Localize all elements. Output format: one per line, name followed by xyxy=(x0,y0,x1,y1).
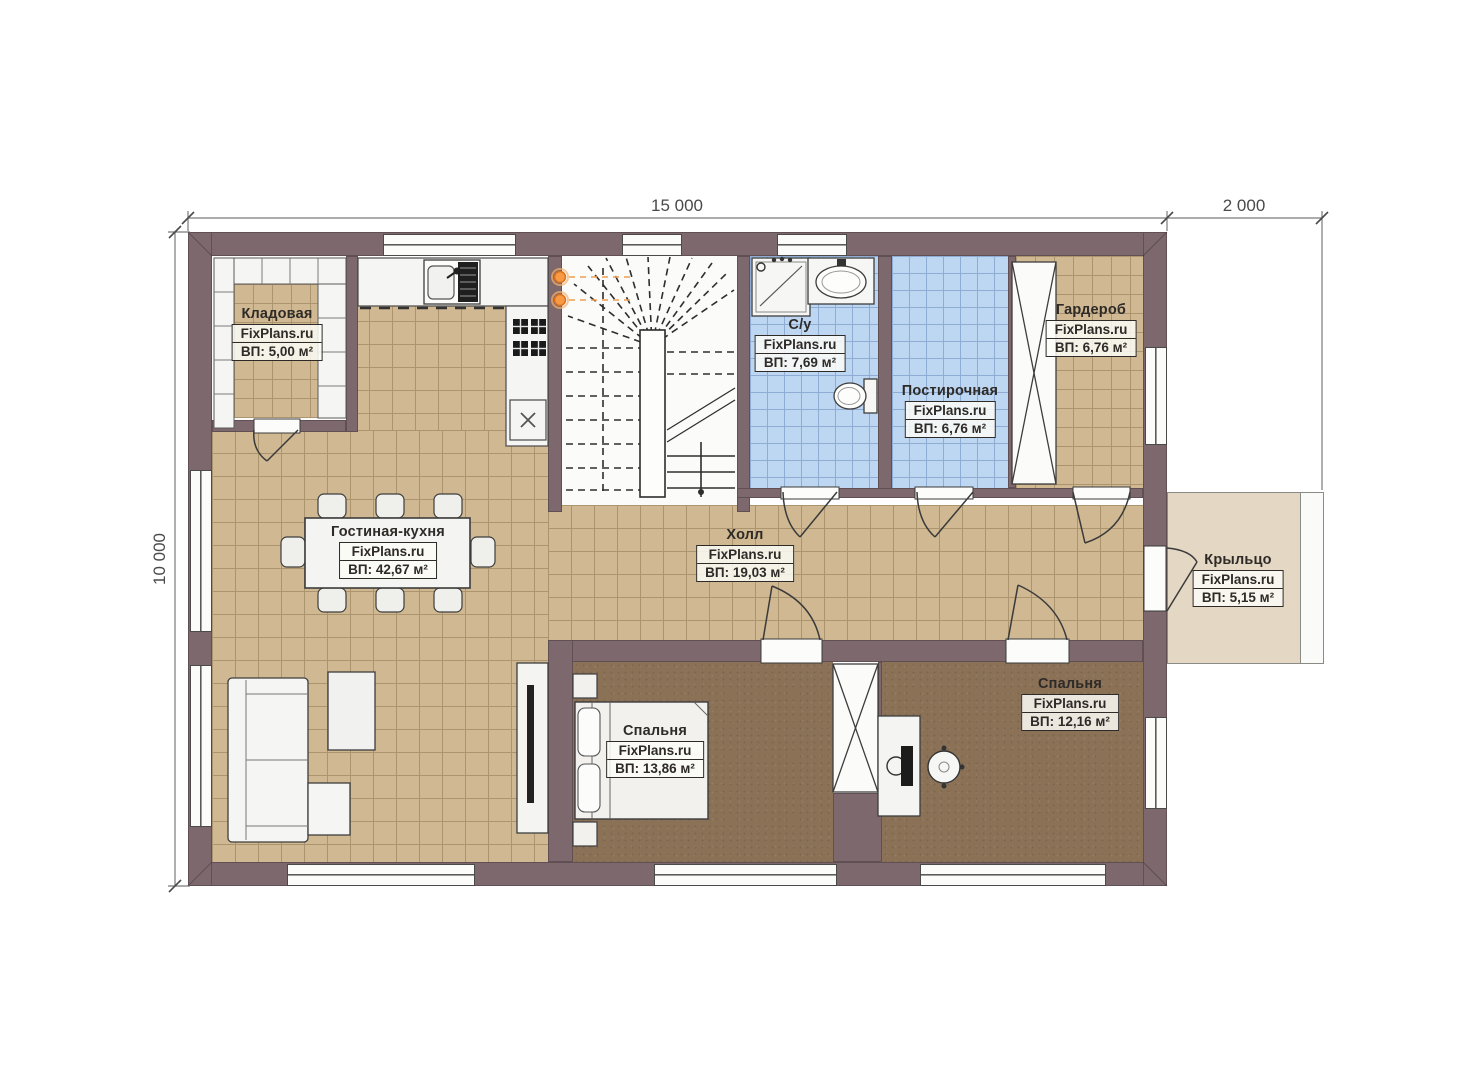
stairwell-floor xyxy=(562,256,737,505)
wall-hall-top xyxy=(737,488,1143,498)
wall-bedroom-divider xyxy=(833,793,882,862)
window-left-lower xyxy=(190,665,212,827)
room-name: Гардероб xyxy=(1046,302,1137,318)
wall-laundry-wardrobe xyxy=(1008,256,1016,488)
wall-storage-right xyxy=(346,256,358,432)
room-area: ВП: 12,16 м² xyxy=(1022,712,1118,730)
room-area: ВП: 6,76 м² xyxy=(906,419,995,437)
window-bottom-bedroom2 xyxy=(920,864,1106,886)
room-info-box: FixPlans.ru ВП: 12,16 м² xyxy=(1021,694,1119,731)
room-info-box: FixPlans.ru ВП: 13,86 м² xyxy=(606,741,704,778)
room-name: Спальня xyxy=(1021,676,1119,692)
room-info-box: FixPlans.ru ВП: 5,00 м² xyxy=(232,324,323,361)
room-watermark: FixPlans.ru xyxy=(340,543,436,560)
room-info-box: FixPlans.ru ВП: 42,67 м² xyxy=(339,542,437,579)
room-name: С/у xyxy=(755,317,846,333)
room-info-box: FixPlans.ru ВП: 19,03 м² xyxy=(696,545,794,582)
room-label-sanuzel: С/у FixPlans.ru ВП: 7,69 м² xyxy=(755,317,846,372)
dimension-top-main: 15 000 xyxy=(651,196,703,216)
room-area: ВП: 13,86 м² xyxy=(607,759,703,777)
room-watermark: FixPlans.ru xyxy=(1194,571,1283,588)
room-watermark: FixPlans.ru xyxy=(697,546,793,563)
room-watermark: FixPlans.ru xyxy=(607,742,703,759)
dimension-top-porch: 2 000 xyxy=(1223,196,1266,216)
room-name: Холл xyxy=(696,527,794,543)
room-label-garderob: Гардероб FixPlans.ru ВП: 6,76 м² xyxy=(1046,302,1137,357)
room-area: ВП: 6,76 м² xyxy=(1047,338,1136,356)
wall-bedroom-divider-thin xyxy=(878,662,882,793)
room-floor-bathroom xyxy=(750,256,878,490)
window-right-bedroom2 xyxy=(1145,717,1167,809)
window-top-stairs xyxy=(622,234,682,256)
room-label-kryltso: Крыльцо FixPlans.ru ВП: 5,15 м² xyxy=(1193,552,1284,607)
room-info-box: FixPlans.ru ВП: 6,76 м² xyxy=(1046,320,1137,357)
room-watermark: FixPlans.ru xyxy=(233,325,322,342)
wall-hall-bottom xyxy=(548,640,1143,662)
floor-plan-canvas: 15 000 2 000 10 000 Кладовая FixPlans.ru… xyxy=(0,0,1473,1080)
room-watermark: FixPlans.ru xyxy=(906,402,995,419)
room-area: ВП: 42,67 м² xyxy=(340,560,436,578)
room-floor-wardrobe xyxy=(1016,256,1143,488)
room-label-gostinaya-kuhnya: Гостиная-кухня FixPlans.ru ВП: 42,67 м² xyxy=(331,524,445,579)
porch-step xyxy=(1300,492,1324,664)
wall-stairwell-left xyxy=(548,256,562,512)
room-label-holl: Холл FixPlans.ru ВП: 19,03 м² xyxy=(696,527,794,582)
room-area: ВП: 7,69 м² xyxy=(756,353,845,371)
room-floor-laundry xyxy=(892,256,1008,490)
window-right-wardrobe xyxy=(1145,347,1167,445)
window-bottom-living xyxy=(287,864,475,886)
room-info-box: FixPlans.ru ВП: 7,69 м² xyxy=(755,335,846,372)
room-name: Крыльцо xyxy=(1193,552,1284,568)
room-area: ВП: 5,15 м² xyxy=(1194,588,1283,606)
dimension-left-main: 10 000 xyxy=(150,533,170,585)
wall-living-bedroom1 xyxy=(548,640,573,862)
room-watermark: FixPlans.ru xyxy=(1047,321,1136,338)
window-top-bathroom xyxy=(777,234,847,256)
wall-bath-laundry xyxy=(878,256,892,490)
room-name: Спальня xyxy=(606,723,704,739)
wall-stairwell-right xyxy=(737,256,750,512)
window-bottom-bedroom1 xyxy=(654,864,837,886)
room-area: ВП: 19,03 м² xyxy=(697,563,793,581)
room-label-postirochnaya: Постирочная FixPlans.ru ВП: 6,76 м² xyxy=(902,383,998,438)
room-label-spalnya-2: Спальня FixPlans.ru ВП: 12,16 м² xyxy=(1021,676,1119,731)
room-name: Постирочная xyxy=(902,383,998,399)
room-label-spalnya-1: Спальня FixPlans.ru ВП: 13,86 м² xyxy=(606,723,704,778)
window-left-upper xyxy=(190,470,212,632)
room-floor-kitchen-strip xyxy=(346,298,548,430)
room-floor-hall xyxy=(548,505,1143,640)
room-watermark: FixPlans.ru xyxy=(756,336,845,353)
wall-storage-bottom xyxy=(212,420,346,432)
room-name: Гостиная-кухня xyxy=(331,524,445,540)
room-label-kladovaya: Кладовая FixPlans.ru ВП: 5,00 м² xyxy=(232,306,323,361)
room-name: Кладовая xyxy=(232,306,323,322)
room-info-box: FixPlans.ru ВП: 5,15 м² xyxy=(1193,570,1284,607)
room-area: ВП: 5,00 м² xyxy=(233,342,322,360)
window-top-kitchen xyxy=(383,234,516,256)
room-info-box: FixPlans.ru ВП: 6,76 м² xyxy=(905,401,996,438)
room-watermark: FixPlans.ru xyxy=(1022,695,1118,712)
room-floor-living-kitchen xyxy=(212,430,548,862)
bedroom-divider-closet xyxy=(833,664,878,792)
